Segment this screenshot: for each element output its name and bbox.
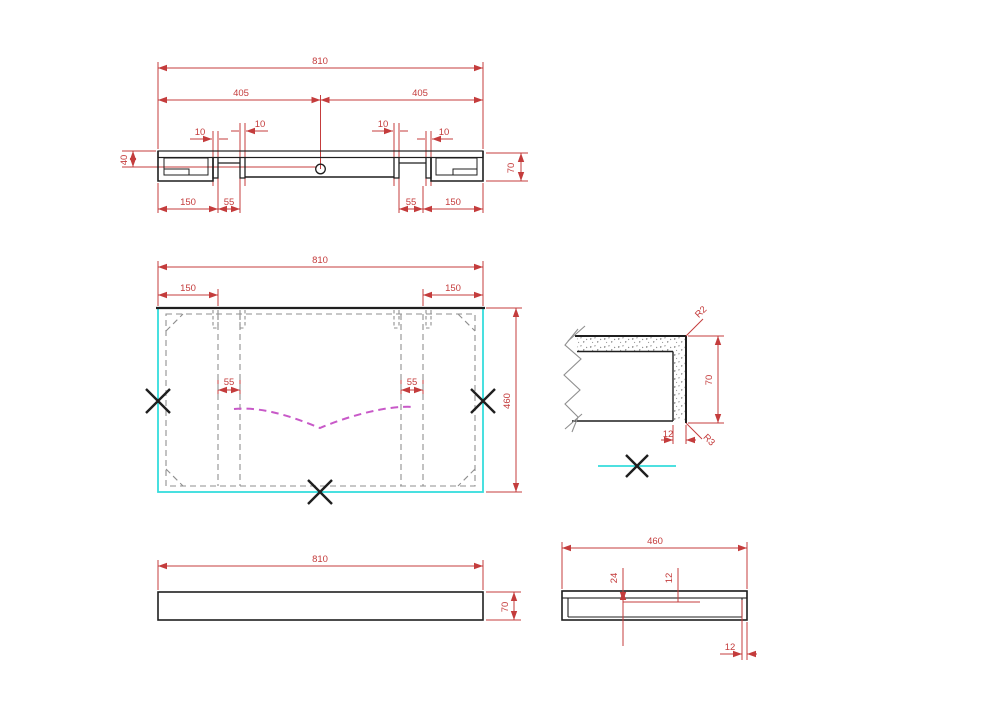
side-top-skin <box>562 591 747 598</box>
dim-slot-c: 10 <box>378 119 389 130</box>
corner-detail-view: R2 70 12 R3 <box>564 304 724 477</box>
dim-section-half-left: 405 <box>233 88 249 99</box>
dim-section-total-height: 70 <box>506 163 517 174</box>
dim-plan-rib-left: 55 <box>224 377 235 388</box>
section-cut-markers <box>146 389 495 504</box>
leader-r3 <box>686 423 702 439</box>
dim-bottom-55-left: 55 <box>224 197 235 208</box>
dim-plan-overall: 810 <box>312 255 328 266</box>
dim-bottom-150-right: 150 <box>445 197 461 208</box>
dim-side-ledge: 12 <box>664 573 675 584</box>
dim-section-half-right: 405 <box>412 88 428 99</box>
leader-r2 <box>686 319 703 336</box>
dim-plan-rib-right: 55 <box>407 377 418 388</box>
front-outline <box>158 592 483 620</box>
dim-plan-offset-left: 150 <box>180 283 196 294</box>
dim-plan-offset-right: 150 <box>445 283 461 294</box>
cad-drawing: 810 405 405 10 10 10 10 40 70 150 55 <box>0 0 1000 707</box>
plan-extension-lines <box>158 261 522 492</box>
dim-slot-b: 10 <box>255 119 266 130</box>
dim-detail-height: 70 <box>704 375 715 386</box>
side-elevation-view: 460 24 12 12 <box>562 536 757 660</box>
section-view: 810 405 405 10 10 10 10 40 70 150 55 <box>119 56 528 213</box>
dim-bottom-150-left: 150 <box>180 197 196 208</box>
dim-side-wall: 12 <box>725 642 736 653</box>
dim-slot-a: 10 <box>195 127 206 138</box>
dim-side-overall: 460 <box>647 536 663 547</box>
dim-slot-d: 10 <box>439 127 450 138</box>
side-outline <box>562 591 747 620</box>
plan-cyan-outline <box>158 308 483 492</box>
plan-view: 810 150 150 55 55 460 <box>146 255 522 504</box>
dim-section-rim-height: 40 <box>119 155 130 166</box>
section-extension-lines <box>122 62 528 213</box>
slope-line <box>234 407 414 428</box>
plan-hidden-lines <box>166 310 475 486</box>
front-elevation-view: 810 70 <box>158 554 521 620</box>
dim-front-overall: 810 <box>312 554 328 565</box>
dim-side-recess: 24 <box>609 573 620 584</box>
dim-bottom-55-right: 55 <box>406 197 417 208</box>
dim-plan-depth: 460 <box>502 393 513 409</box>
detail-wall-fill <box>577 337 685 421</box>
dim-detail-top-radius: R2 <box>693 304 709 320</box>
slot-dims: 10 10 10 10 <box>190 119 453 139</box>
dim-detail-bottom-radius: R3 <box>701 432 717 448</box>
dim-front-height: 70 <box>500 602 511 613</box>
dim-section-overall: 810 <box>312 56 328 67</box>
dim-detail-wall: 12 <box>663 429 674 440</box>
